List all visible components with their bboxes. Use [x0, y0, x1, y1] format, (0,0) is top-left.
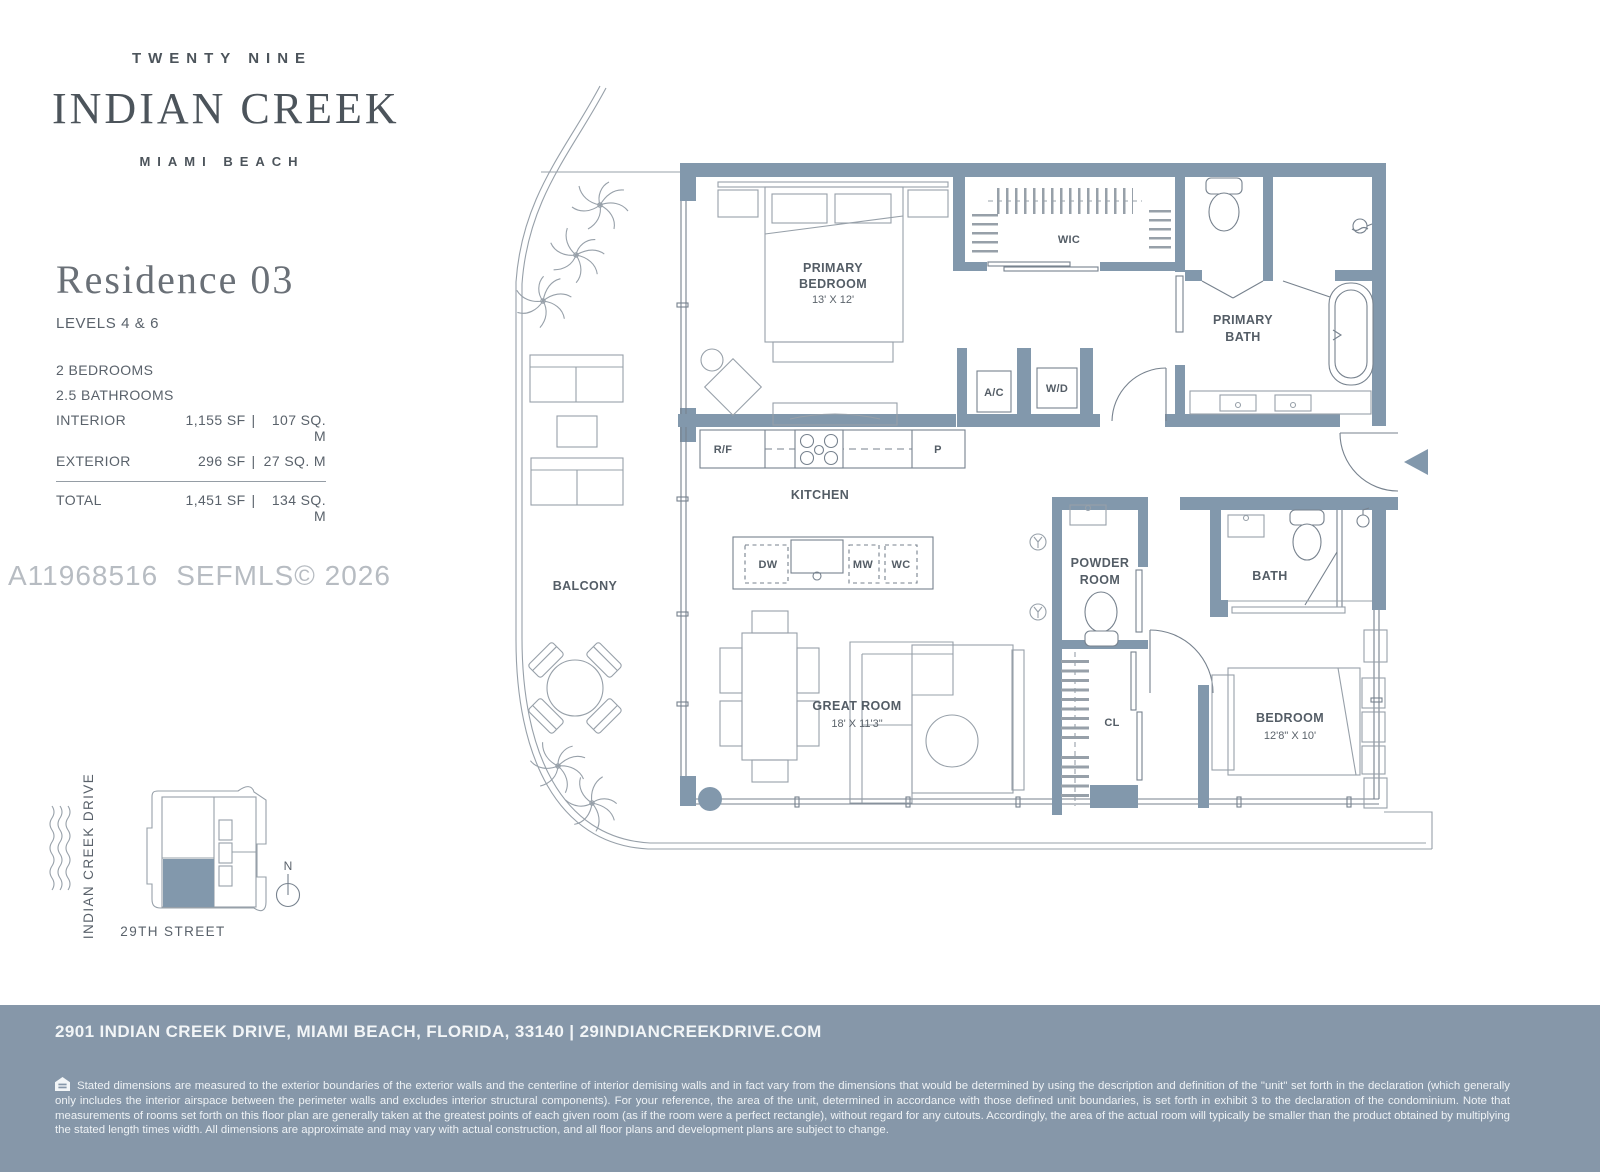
lounge-chair	[705, 359, 762, 416]
closet-sliding-door	[1137, 712, 1142, 780]
room-label-primary-bath: PRIMARY	[1213, 313, 1273, 327]
balcony-sofa	[531, 458, 623, 505]
label-wine-cooler: WC	[892, 559, 911, 571]
room-label-balcony: BALCONY	[553, 579, 618, 593]
label-microwave: MW	[853, 559, 873, 571]
unit-highlight	[163, 859, 214, 907]
balcony-coffee-table	[557, 416, 597, 447]
room-label-bedroom: BEDROOM	[1256, 711, 1324, 725]
wic-sliding-door	[988, 262, 1070, 266]
nightstand	[718, 190, 758, 217]
palm-tree-icon	[525, 737, 591, 797]
room-label-powder: POWDER	[1071, 556, 1130, 570]
structural-column	[698, 787, 722, 811]
toilet-icon	[1206, 178, 1242, 231]
kitchen: R/F P KITCHEN DW MW WC	[700, 430, 965, 589]
area-rug	[912, 645, 1013, 793]
floor-plan-drawing: BALCONY	[0, 0, 1600, 1172]
balcony-sofa	[530, 355, 623, 402]
compass-icon: N	[277, 859, 300, 907]
room-dims-primary-bedroom: 13' X 12'	[812, 294, 854, 306]
label-dishwasher: DW	[759, 559, 778, 571]
bathtub-icon	[1329, 283, 1373, 385]
building-keyplan	[147, 787, 266, 911]
side-table	[701, 349, 723, 371]
room-label-kitchen: KITCHEN	[791, 488, 849, 502]
palm-tree-icon	[540, 221, 612, 290]
svg-text:BEDROOM: BEDROOM	[799, 277, 867, 291]
room-dims-bedroom: 12'8" X 10'	[1264, 730, 1316, 742]
room-label-great-room: GREAT ROOM	[812, 699, 901, 713]
footer-band: 2901 INDIAN CREEK DRIVE, MIAMI BEACH, FL…	[0, 1005, 1600, 1172]
console-table	[1012, 650, 1024, 790]
compass-north-label: N	[284, 859, 293, 873]
palm-tree-icon	[509, 270, 578, 333]
round-coffee-table	[926, 715, 978, 767]
palm-tree-icon	[572, 182, 628, 229]
label-ac-closet: A/C	[984, 387, 1004, 399]
footer-address: 2901 INDIAN CREEK DRIVE, MIAMI BEACH, FL…	[55, 1022, 822, 1042]
double-vanity	[1190, 391, 1371, 414]
wic-sliding-door	[1004, 267, 1098, 271]
toilet-icon	[1085, 592, 1118, 646]
label-pantry: P	[934, 444, 942, 456]
footer-disclaimer: Stated dimensions are measured to the ex…	[55, 1077, 1510, 1138]
primary-bath-pocket-door	[1176, 276, 1183, 332]
svg-text:ROOM: ROOM	[1080, 573, 1121, 587]
nightstand	[1364, 630, 1387, 662]
svg-text:BATH: BATH	[1225, 330, 1260, 344]
dining-table	[720, 611, 819, 782]
entry-arrow-icon	[1404, 449, 1428, 475]
label-wd-closet: W/D	[1046, 383, 1068, 395]
disclaimer-text: Stated dimensions are measured to the ex…	[55, 1080, 1510, 1136]
site-plan: INDIAN CREEK DRIVE 29TH STREET N	[50, 773, 300, 939]
equal-housing-icon	[55, 1077, 70, 1091]
room-dims-great-room: 18' X 11'3"	[831, 718, 882, 730]
closet-sliding-door	[1131, 652, 1136, 710]
primary-bath: PRIMARY BATH	[1190, 178, 1373, 414]
cooktop-icon	[795, 430, 843, 468]
room-label-cl: CL	[1104, 717, 1119, 729]
bench	[1232, 607, 1345, 613]
powder-room: POWDER ROOM	[1030, 505, 1129, 646]
room-label-primary-bedroom: PRIMARY	[803, 261, 863, 275]
second-bedroom: BEDROOM 12'8" X 10'	[1212, 601, 1387, 808]
floorplan-sheet: TWENTY NINE INDIAN CREEK MIAMI BEACH Res…	[0, 0, 1600, 1172]
balcony-dining-set	[528, 642, 623, 735]
nightstand	[908, 190, 948, 217]
label-refrigerator: R/F	[714, 444, 733, 456]
great-room: GREAT ROOM 18' X 11'3"	[720, 611, 1024, 803]
room-label-wic: WIC	[1058, 234, 1080, 246]
room-label-bath: BATH	[1252, 569, 1287, 583]
toilet-icon	[1290, 510, 1324, 560]
second-bath: BATH	[1228, 508, 1369, 613]
wall-sconce-icon	[1030, 534, 1046, 620]
site-label-street: 29TH STREET	[120, 924, 225, 939]
walk-in-closet: WIC	[985, 201, 1160, 254]
shower-head-icon	[1352, 219, 1372, 233]
water-waves-icon	[50, 806, 70, 890]
site-label-drive: INDIAN CREEK DRIVE	[81, 773, 96, 939]
hall-closet: CL	[1075, 652, 1142, 806]
palm-tree-icon	[560, 769, 623, 838]
shower-head-icon	[1357, 508, 1369, 527]
primary-bedroom: PRIMARY BEDROOM 13' X 12'	[701, 182, 948, 425]
powder-pocket-door	[1136, 570, 1142, 632]
kitchen-island: DW MW WC	[733, 537, 933, 589]
